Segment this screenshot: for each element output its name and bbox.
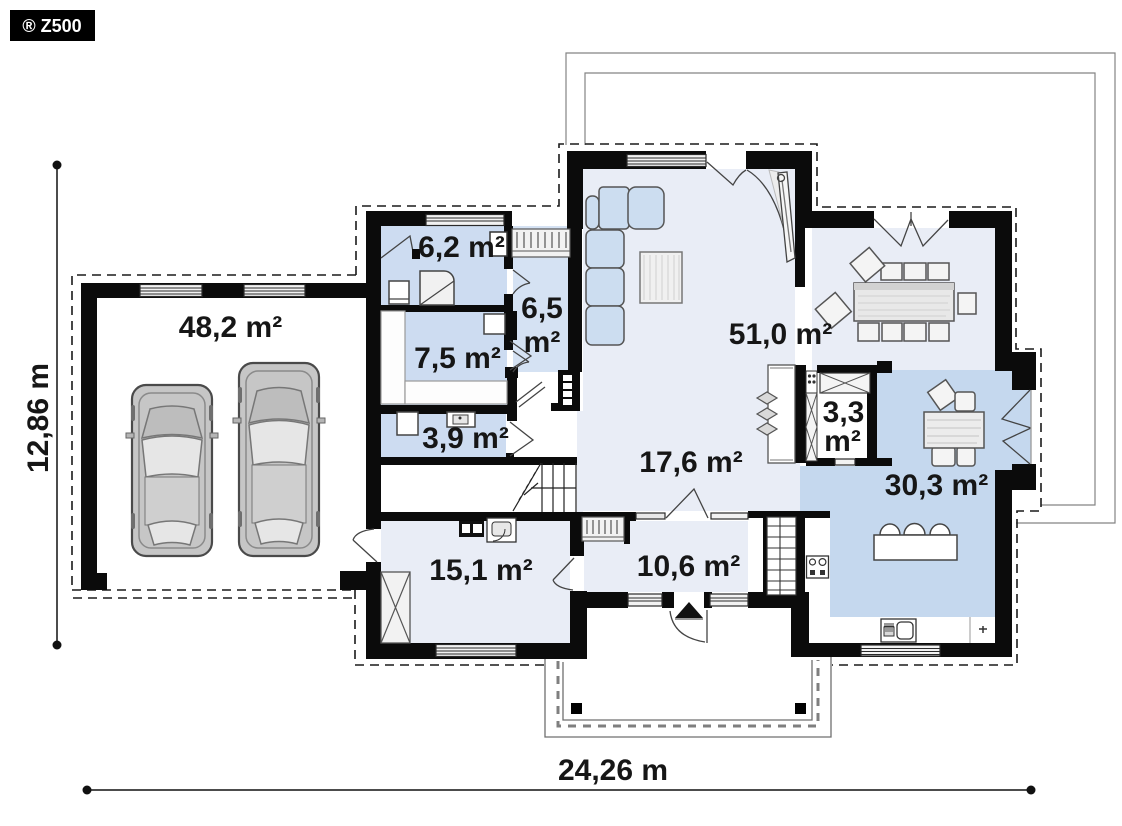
svg-text:3,9 m²: 3,9 m² bbox=[422, 422, 509, 455]
svg-text:® Z500: ® Z500 bbox=[22, 16, 81, 36]
svg-text:24,26 m: 24,26 m bbox=[558, 754, 668, 787]
svg-text:12,86 m: 12,86 m bbox=[22, 363, 55, 473]
svg-text:10,6 m²: 10,6 m² bbox=[637, 550, 740, 583]
svg-text:51,0 m²: 51,0 m² bbox=[729, 318, 832, 351]
svg-text:7,5 m²: 7,5 m² bbox=[414, 342, 501, 375]
svg-text:m²: m² bbox=[524, 326, 561, 359]
svg-text:6,5: 6,5 bbox=[521, 292, 563, 325]
svg-text:48,2 m²: 48,2 m² bbox=[179, 311, 282, 344]
svg-text:m²: m² bbox=[824, 425, 861, 458]
svg-text:17,6 m²: 17,6 m² bbox=[639, 446, 742, 479]
svg-text:15,1 m²: 15,1 m² bbox=[429, 554, 532, 587]
svg-text:6,2 m²: 6,2 m² bbox=[418, 231, 505, 264]
svg-text:30,3 m²: 30,3 m² bbox=[885, 469, 988, 502]
